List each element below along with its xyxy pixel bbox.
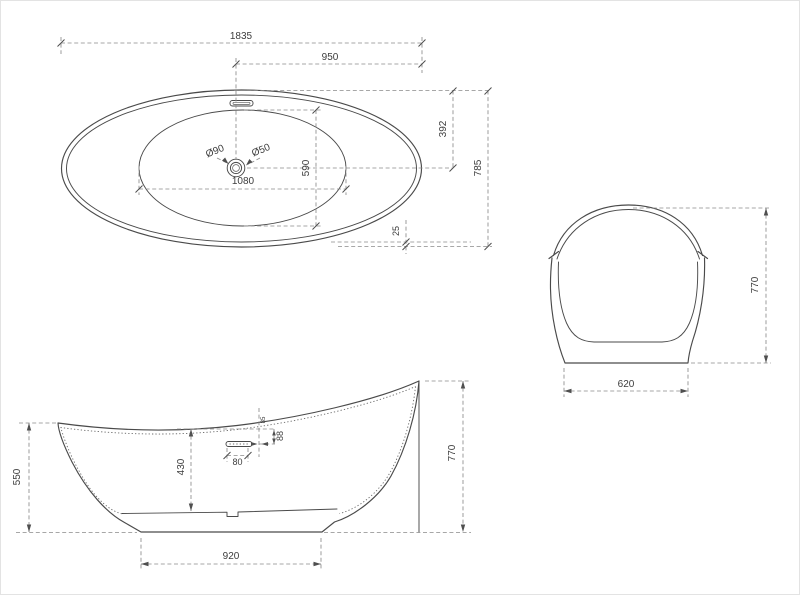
overflow-slot-side (226, 442, 252, 447)
dim-drain-to-end: 950 (322, 52, 339, 63)
technical-drawing-canvas: 1835 950 392 785 590 1080 25 Ø90 Ø50 770… (0, 0, 800, 595)
dim-overflow-below-rim: 88 (275, 431, 285, 441)
end-view-dim-arrows (564, 208, 768, 393)
dim-rim-overhang: 25 (391, 226, 401, 236)
side-view-inner-surface (61, 387, 416, 515)
side-view-basin-floor (122, 509, 337, 517)
top-view-dimension-lines (61, 37, 492, 254)
end-view-dimension-lines (564, 208, 771, 397)
dim-drain-inner-dia: Ø50 (250, 142, 272, 159)
dim-back-height: 770 (447, 444, 458, 461)
dim-inner-depth: 430 (176, 458, 187, 475)
dim-basin-length: 1080 (232, 176, 255, 187)
dim-end-height: 770 (750, 276, 761, 293)
drain-leader-arrows (222, 158, 253, 166)
dim-rim-to-centerline: 392 (438, 120, 449, 137)
top-view-dim-ticks (58, 40, 492, 251)
dim-overall-length: 1835 (230, 31, 253, 42)
dim-base-length: 920 (223, 551, 240, 562)
dim-drain-outer-dia: Ø90 (204, 143, 226, 160)
top-view: 1835 950 392 785 590 1080 25 Ø90 Ø50 (58, 31, 493, 254)
end-view-rim-inner-arc (557, 210, 700, 260)
overflow-slot-top (230, 101, 253, 107)
dim-overflow-length: 80 (232, 457, 242, 467)
dim-overflow-offset: 85 (261, 416, 267, 423)
dim-basin-width: 590 (301, 159, 312, 176)
end-view-basin (558, 262, 697, 342)
side-view: 550 430 88 85 80 770 920 (12, 381, 471, 570)
bathtub-drawing: 1835 950 392 785 590 1080 25 Ø90 Ø50 770… (1, 1, 800, 596)
side-view-dim-arrows (27, 381, 465, 566)
dim-overall-width: 785 (473, 159, 484, 176)
end-view: 770 620 (549, 205, 771, 397)
end-view-outline (549, 205, 708, 363)
side-view-dimension-lines (16, 381, 471, 570)
dim-end-base-width: 620 (618, 379, 635, 390)
drain (227, 159, 245, 177)
dim-front-rim-height: 550 (12, 468, 23, 485)
